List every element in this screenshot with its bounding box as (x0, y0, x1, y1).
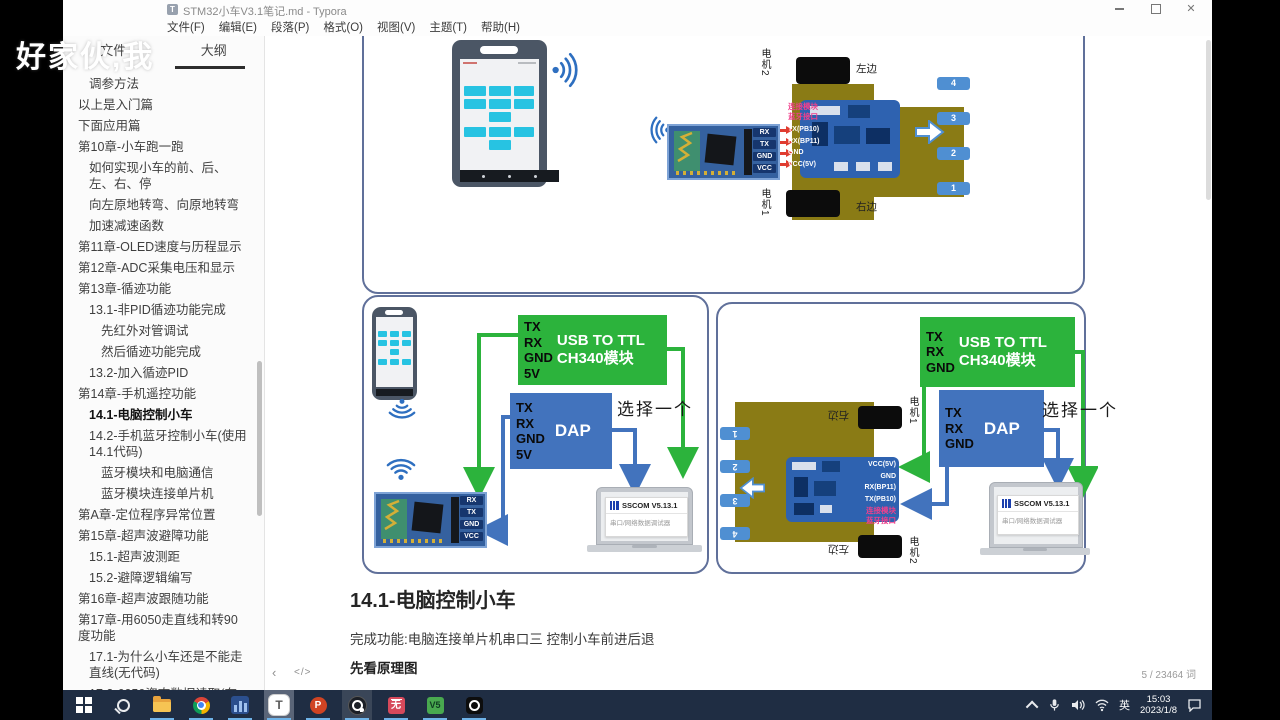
source-code-mode-icon[interactable]: </> (294, 667, 311, 678)
input-language-indicator[interactable]: 英 (1119, 697, 1130, 713)
figure-pc-to-bluetooth[interactable]: TX RX GND 5V USB TO TTL CH340模块 TX RX GN… (362, 295, 709, 574)
outline-item[interactable]: 第15章-超声波避障功能 (63, 528, 264, 544)
outline-item[interactable]: 调参方法 (63, 76, 264, 92)
active-tab-underline (175, 66, 245, 69)
module-pin-tx: TX (460, 508, 483, 517)
outline-item[interactable]: 向左原地转弯、向原地转弯 (63, 197, 264, 213)
sidebar-scrollbar[interactable] (257, 361, 262, 516)
typora-icon: T (268, 694, 290, 716)
tab-files[interactable]: 文件 (63, 36, 164, 70)
module-pin-rx: RX (753, 128, 776, 137)
figure-pc-to-car[interactable]: 1 2 3 4 右边 电机1 左边 电机2 VCC(5V) (716, 302, 1086, 574)
editor-content[interactable]: RX TX GND VCC 电机2 左边 电机1 右边 4 3 2 1 (265, 36, 1212, 690)
module-pin-vcc: VCC (753, 164, 776, 173)
figure-phone-bluetooth-car[interactable]: RX TX GND VCC 电机2 左边 电机1 右边 4 3 2 1 (362, 36, 1085, 294)
system-tray: 英 15:03 2023/1/8 (1029, 690, 1202, 720)
phone-speaker (480, 46, 518, 54)
sscom-logo (610, 501, 619, 510)
module-chip (705, 134, 737, 166)
speaker-icon[interactable] (1071, 698, 1085, 712)
wheel-1: 1 (937, 182, 970, 195)
menu-theme[interactable]: 主题(T) (429, 19, 467, 35)
maximize-icon (1151, 4, 1161, 14)
typora-app-icon: T (167, 4, 178, 15)
maximize-button[interactable] (1141, 0, 1171, 18)
outline-item[interactable]: 第16章-超声波跟随功能 (63, 591, 264, 607)
wheel-2: 2 (937, 147, 970, 160)
wheel-4: 4 (720, 527, 750, 540)
phone-remote-app (452, 40, 547, 187)
close-icon: ✕ (1186, 0, 1195, 18)
left-side-label: 左边 (856, 61, 877, 76)
right-side-label: 右边 (828, 408, 849, 423)
motor2-label: 电机2 (757, 48, 772, 77)
blue-app-icon (231, 696, 249, 714)
outline-item[interactable]: 先红外对管调试 (63, 323, 264, 339)
windows-taskbar: T P 无 V5 英 15:03 2023/1/8 (63, 690, 1212, 720)
motor-2 (858, 535, 902, 558)
outline-item[interactable]: 13.1-非PID循迹功能完成 (63, 302, 264, 318)
word-count: 5 / 23464 词 (1142, 666, 1196, 681)
wireless-signal-icon (386, 452, 416, 482)
window-title: STM32小车V3.1笔记.md - Typora (183, 3, 347, 19)
menu-help[interactable]: 帮助(H) (481, 19, 520, 35)
phone-screen (460, 59, 539, 170)
dark-circle-app-icon (466, 697, 483, 714)
outline-item[interactable]: 然后循迹功能完成 (63, 344, 264, 360)
right-side-label: 右边 (856, 199, 877, 214)
sidebar-tabs: 文件 大纲 (63, 36, 264, 70)
outline-item[interactable]: 如何实现小车的前、后、左、右、停 (63, 160, 264, 192)
module-pin-gnd: GND (460, 520, 483, 529)
outline-item[interactable]: 17.1-为什么小车还是不能走直线(无代码) (63, 649, 264, 681)
laptop-sscom: SSCOM V5.13.1 串口/网络数据调试器 (587, 487, 702, 555)
minimize-icon (1115, 8, 1124, 10)
menu-view[interactable]: 视图(V) (377, 19, 415, 35)
dark-circle-app-button[interactable] (459, 690, 489, 720)
outline-item[interactable]: 14.1-电脑控制小车 (63, 407, 264, 423)
wireless-signal-icon (388, 397, 416, 425)
outline-item[interactable]: 第A章-定位程序异常位置 (63, 507, 264, 523)
board-note: 连接模块 蓝牙接口 (858, 506, 896, 526)
module-pin-rx: RX (460, 496, 483, 505)
section-paragraph[interactable]: 完成功能:电脑连接单片机串口三 控制小车前进后退 (350, 628, 655, 648)
menu-file[interactable]: 文件(F) (167, 19, 205, 35)
outline-item[interactable]: 下面应用篇 (63, 118, 264, 134)
outline-item[interactable]: 蓝牙模块连接单片机 (63, 486, 264, 502)
usb-ttl-module-box: TX RX GND 5V USB TO TTL CH340模块 (518, 315, 667, 385)
laptop-sscom: SSCOM V5.13.1 串口/网络数据调试器 (980, 482, 1090, 560)
module-pin-header (744, 129, 752, 175)
red-app-icon: 无 (388, 697, 405, 714)
outline-item[interactable]: 蓝牙模块和电脑通信 (63, 465, 264, 481)
start-button[interactable] (69, 690, 99, 720)
outline-list: 调参方法以上是入门篇下面应用篇第10章-小车跑一跑如何实现小车的前、后、左、右、… (63, 76, 264, 690)
outline-item[interactable]: 以上是入门篇 (63, 97, 264, 113)
module-antenna-area (674, 131, 700, 171)
tab-outline[interactable]: 大纲 (164, 36, 265, 70)
phone-remote-app (372, 307, 417, 400)
usb-ttl-module-box: TX RX GND USB TO TTL CH340模块 (920, 317, 1075, 387)
wireless-signal-icon (550, 52, 586, 88)
menu-paragraph[interactable]: 段落(P) (271, 19, 309, 35)
keil-uvision-button[interactable]: V5 (420, 690, 450, 720)
wifi-tray-icon[interactable] (1095, 698, 1109, 712)
module-pin-vcc: VCC (460, 532, 483, 541)
minimize-button[interactable] (1104, 0, 1134, 18)
red-app-button[interactable]: 无 (381, 690, 411, 720)
forward-arrow-icon (915, 120, 945, 144)
chrome-button[interactable] (186, 690, 216, 720)
microphone-icon[interactable] (1048, 698, 1061, 712)
action-center-icon[interactable] (1187, 698, 1202, 712)
outline-item[interactable]: 第13章-循迹功能 (63, 281, 264, 297)
wheel-4: 4 (937, 77, 970, 90)
choose-one-label: 选择一个 (1042, 396, 1118, 421)
menu-edit[interactable]: 编辑(E) (219, 19, 257, 35)
forward-arrow-icon (739, 477, 765, 499)
motor1-label: 电机1 (905, 396, 920, 425)
module-pin-gnd: GND (753, 152, 776, 161)
typora-taskbar-button[interactable]: T (264, 690, 294, 720)
motor-2 (796, 57, 850, 84)
outline-item[interactable]: 第17章-用6050走直线和转90度功能 (63, 612, 264, 644)
motor2-label: 电机2 (905, 536, 920, 565)
motor-1 (858, 406, 902, 429)
powerpoint-icon: P (310, 697, 327, 714)
motor1-label: 电机1 (757, 188, 772, 217)
obs-button[interactable] (342, 690, 372, 720)
motor-1 (786, 190, 840, 217)
menu-bar: 文件(F) 编辑(E) 段落(P) 格式(O) 视图(V) 主题(T) 帮助(H… (63, 18, 1212, 36)
windows-logo-icon (76, 697, 92, 713)
module-contacts (676, 171, 736, 175)
dap-module-box: TX RX GND DAP (939, 390, 1044, 467)
phone-navbar (460, 170, 559, 182)
board-note: 连接模块 蓝牙接口 (788, 102, 818, 122)
outline-item[interactable]: 15.2-避障逻辑编写 (63, 570, 264, 586)
folder-icon (153, 699, 171, 712)
outline-item[interactable]: 第10章-小车跑一跑 (63, 139, 264, 155)
search-button[interactable] (108, 690, 138, 720)
choose-one-label: 选择一个 (617, 395, 693, 420)
outline-item[interactable]: 第11章-OLED速度与历程显示 (63, 239, 264, 255)
outline-item[interactable]: 加速减速函数 (63, 218, 264, 234)
menu-format[interactable]: 格式(O) (323, 19, 363, 35)
outline-item[interactable]: 14.2-手机蓝牙控制小车(使用14.1代码) (63, 428, 264, 460)
section-bold-line[interactable]: 先看原理图 (350, 657, 418, 677)
wheel-1: 1 (720, 427, 750, 440)
blue-app-button[interactable] (225, 690, 255, 720)
outline-item[interactable]: 第14章-手机遥控功能 (63, 386, 264, 402)
module-pin-tx: TX (753, 140, 776, 149)
bluetooth-module: RX TX GND VCC (374, 492, 487, 548)
close-button[interactable]: ✕ (1176, 0, 1206, 18)
sidebar: 文件 大纲 调参方法以上是入门篇下面应用篇第10章-小车跑一跑如何实现小车的前、… (63, 36, 265, 690)
content-scrollbar[interactable] (1206, 40, 1211, 200)
sscom-logo (1002, 499, 1011, 508)
tray-expand-icon[interactable] (1026, 700, 1039, 713)
file-explorer-button[interactable] (147, 690, 177, 720)
board-pin-labels: VCC(5V) GND RX(BP11) TX(PB10) (838, 459, 896, 505)
bluetooth-module: RX TX GND VCC (667, 124, 780, 180)
clock[interactable]: 15:03 2023/1/8 (1140, 694, 1177, 716)
board-pin-labels: TX(PB10) RX(BP11) GND VCC(5V) (788, 124, 820, 170)
left-side-label: 左边 (828, 542, 849, 557)
chrome-icon (193, 697, 210, 714)
keil-uvision-icon: V5 (427, 697, 444, 714)
outline-item[interactable]: 13.2-加入循迹PID (63, 365, 264, 381)
powerpoint-button[interactable]: P (303, 690, 333, 720)
desktop-screen: T STM32小车V3.1笔记.md - Typora ✕ 文件(F) 编辑(E… (63, 0, 1212, 720)
wheel-2: 2 (720, 460, 750, 473)
window-titlebar: T STM32小车V3.1笔记.md - Typora ✕ (63, 0, 1212, 18)
obs-icon (348, 696, 367, 715)
section-heading[interactable]: 14.1-电脑控制小车 (350, 584, 516, 613)
dap-module-box: TX RX GND 5V DAP (510, 393, 612, 469)
outline-item[interactable]: 第12章-ADC采集电压和显示 (63, 260, 264, 276)
outline-item[interactable]: 15.1-超声波测距 (63, 549, 264, 565)
sidebar-toggle-icon[interactable]: ‹ (272, 665, 276, 680)
search-icon (117, 699, 130, 712)
